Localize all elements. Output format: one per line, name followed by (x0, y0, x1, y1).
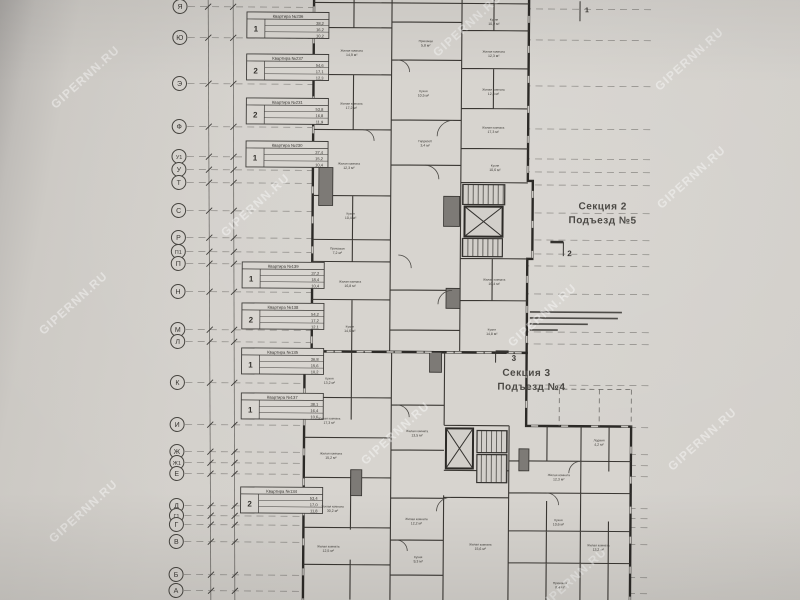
room-area: 17,2 м² (346, 106, 358, 110)
axis-letter: И (175, 422, 180, 429)
apartment-stamp: Квартира №237254,617,112,3 (247, 54, 329, 81)
room-area: 13,2 м² (324, 381, 336, 385)
svg-text:2: 2 (567, 249, 572, 258)
stamp-title: Квартира №134 (266, 489, 297, 494)
room-area: 9,3 м² (413, 560, 423, 564)
stamp-area: 10,4 (315, 162, 324, 167)
axis-letter: У1 (176, 155, 183, 161)
stamp-area: 54,2 (311, 312, 320, 317)
room-area: 12,3 м² (488, 92, 500, 96)
axis-letter: А (174, 588, 179, 595)
axis-letter: Л (175, 339, 180, 346)
stamp-title: Квартира №230 (272, 143, 303, 148)
watermark-text: GIPERNN.RU (654, 143, 728, 212)
room-area: 12,2 м² (411, 521, 423, 525)
axis-letter: Р (176, 235, 181, 242)
stamp-title: Квартира №236 (273, 14, 304, 19)
stamp-title: Квартира №231 (272, 100, 303, 105)
axis-bubbles: ЯЮЭФУ1УТСРП1ПНМЛКИЖЖ1ЕДГ1ГВБА (169, 0, 187, 597)
apartment-stamp: Квартира №137138,116,410,6 (241, 393, 323, 420)
room-area: 15,6 м² (475, 547, 487, 551)
room-area: 10,5 м² (418, 94, 430, 98)
room-area: 14,9 м² (346, 53, 358, 57)
room-area: 12,3 м² (343, 166, 355, 170)
stamp-rooms: 2 (247, 499, 252, 508)
room-area: 5,8 м² (421, 44, 431, 48)
room-area: 10,2 м² (488, 22, 500, 26)
room-area: 17,3 м² (323, 421, 335, 425)
floor-plan-drawing: Квартира №236138,216,210,2Квартира №2372… (0, 0, 800, 600)
room-area: 17,3 м² (487, 130, 499, 134)
stamp-area: 37,4 (315, 150, 324, 155)
room-area: 13,5 м² (411, 433, 423, 437)
room-area: 15,2 м² (325, 456, 337, 460)
apartment-stamp: Квартира №134253,417,011,8 (241, 487, 323, 514)
stamp-area: 53,8 (316, 107, 325, 112)
section2-label: Секция 2 (578, 201, 626, 212)
stamp-rooms: 1 (248, 360, 253, 369)
watermark-text: GIPERNN.RU (46, 477, 120, 546)
stamp-area: 16,4 (310, 408, 319, 413)
room-area: 30,2 м² (327, 509, 339, 513)
watermark-text: GIPERNN.RU (665, 405, 739, 474)
stamp-area: 12,1 (311, 324, 320, 329)
stamp-area: 53,4 (310, 496, 319, 501)
stairs-section3-lower (477, 455, 507, 483)
floor-plan-photo: Квартира №236138,216,210,2Квартира №2372… (0, 0, 800, 600)
stamp-area: 10,2 (311, 369, 320, 374)
stamp-title: Квартира №138 (268, 305, 299, 310)
stamp-area: 38,1 (310, 402, 319, 407)
axis-letter: Б (174, 572, 179, 579)
axis-letter: М (175, 327, 181, 334)
apartment-stamp: Квартира №236138,216,210,2 (247, 12, 329, 39)
apartment-stamp: Квартира №231253,816,811,9 (246, 98, 328, 125)
axis-letter: Я (177, 4, 182, 11)
stamp-area: 17,2 (311, 318, 320, 323)
stamp-area: 10,4 (311, 283, 320, 288)
watermark-text: GIPERNN.RU (36, 269, 110, 338)
apartment-stamp: Квартира №135136,815,610,2 (241, 348, 323, 375)
stamp-rooms: 1 (248, 405, 253, 414)
stamp-area: 10,2 (316, 33, 325, 38)
stamp-area: 12,3 (316, 75, 325, 80)
stamp-area: 17,0 (310, 502, 319, 507)
apartment-stamp: Квартира №139137,218,410,4 (242, 262, 324, 289)
stamp-title: Квартира №139 (268, 264, 299, 269)
axis-letter: У (177, 167, 182, 174)
svg-text:1: 1 (585, 7, 589, 14)
watermark-text: GIPERNN.RU (48, 43, 122, 112)
stamp-area: 38,2 (316, 21, 325, 26)
axis-letter: Ф (177, 124, 182, 131)
stamp-title: Квартира №137 (267, 395, 298, 400)
stamp-area: 15,6 (311, 363, 320, 368)
stamp-area: 11,9 (316, 119, 324, 124)
stairs-section2-upper (463, 184, 505, 204)
stamp-rooms: 2 (249, 315, 254, 324)
open-zone-partitions (526, 389, 631, 427)
axis-letter: Ж (174, 449, 181, 456)
stamp-area: 36,8 (311, 357, 320, 362)
room-area: 4,2 м² (594, 443, 604, 447)
stamp-area: 16,2 (316, 27, 325, 32)
axis-letter: П1 (175, 250, 182, 256)
axis-letter: Э (177, 81, 182, 88)
axis-letter: Е (174, 471, 179, 478)
stamp-rooms: 1 (254, 24, 259, 33)
section3-sublabel: Подъезд №4 (497, 382, 565, 393)
dimension-lines (204, 0, 239, 600)
stairs-section3-upper (477, 431, 507, 453)
room-area: 3,4 м² (420, 144, 430, 148)
stairs-section2-lower (462, 238, 502, 256)
room-area: 16,8 м² (344, 284, 356, 288)
axis-letter: Ю (176, 35, 183, 42)
dimension-ticks (201, 4, 242, 594)
stamp-rooms: 2 (253, 66, 258, 75)
axis-letter: Г (174, 522, 178, 529)
axis-letter: Н (175, 289, 180, 296)
stamp-area: 11,8 (310, 508, 318, 513)
room-area: 10,6 м² (553, 522, 565, 526)
room-area: 10,6 м² (489, 168, 501, 172)
room-area: 10,4 м² (345, 216, 357, 220)
watermark-text: GIPERNN.RU (652, 25, 726, 94)
axis-letter: П (176, 261, 181, 268)
apartment-stamp: Квартира №138254,217,212,1 (242, 303, 324, 330)
axis-letter: В (174, 539, 179, 546)
stamp-area: 16,8 (315, 113, 324, 118)
stamp-area: 54,6 (316, 63, 325, 68)
stamp-title: Квартира №135 (267, 350, 298, 355)
section3-label: Секция 3 (502, 368, 550, 379)
stamp-rooms: 2 (253, 110, 258, 119)
section2-sublabel: Подъезд №5 (568, 215, 636, 226)
stamp-rooms: 1 (253, 153, 258, 162)
room-area: 12,3 м² (488, 54, 500, 58)
stamp-area: 15,2 (315, 156, 324, 161)
stamp-rooms: 1 (249, 274, 254, 283)
watermark-text: GIPERNN.RU (218, 171, 292, 240)
room-area: 14,6 м² (344, 329, 356, 333)
room-area: 12,3 м² (553, 477, 565, 481)
stamp-area: 37,2 (311, 271, 320, 276)
cut-mark-1: 1 (580, 1, 589, 21)
cut-mark-2: 2 (550, 242, 572, 258)
room-area: 12,5 м² (323, 549, 335, 553)
stamp-area: 17,1 (316, 69, 325, 74)
svg-text:3: 3 (512, 354, 517, 363)
stamp-area: 18,4 (311, 277, 320, 282)
apartment-stamp: Квартира №230137,415,210,4 (246, 141, 328, 168)
room-area: 16,4 м² (488, 282, 500, 286)
stamp-title: Квартира №237 (272, 56, 303, 61)
axis-letter: С (176, 208, 181, 215)
room-area: 14,8 м² (486, 332, 498, 336)
room-area: 7,2 м² (333, 251, 343, 255)
